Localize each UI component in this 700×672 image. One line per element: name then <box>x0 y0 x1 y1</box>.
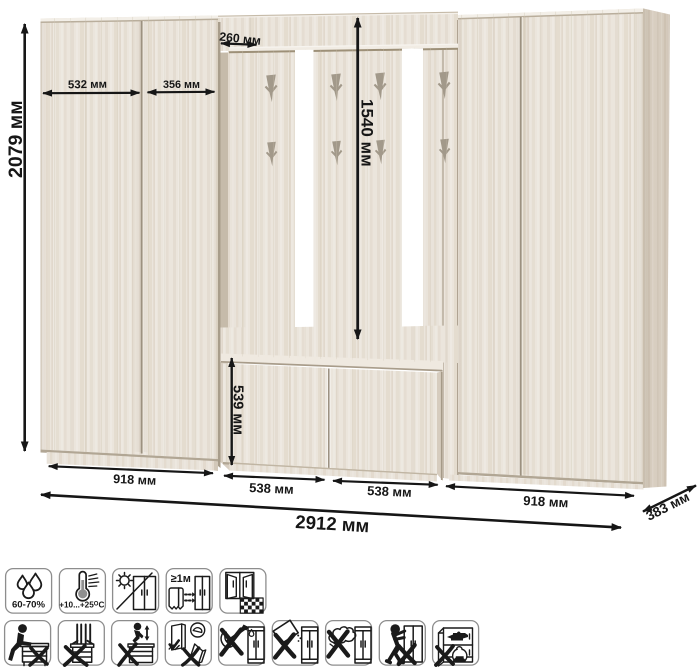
svg-text:538 мм: 538 мм <box>367 483 412 500</box>
svg-text:+10...+25ОС: +10...+25ОС <box>59 601 104 610</box>
svg-text:918 мм: 918 мм <box>523 493 569 510</box>
svg-text:1540 мм: 1540 мм <box>358 99 377 167</box>
svg-text:539 мм: 539 мм <box>230 385 246 435</box>
svg-text:2079 мм: 2079 мм <box>5 100 27 178</box>
svg-text:356 мм: 356 мм <box>163 79 200 91</box>
svg-text:60-70%: 60-70% <box>12 600 46 611</box>
svg-text:532 мм: 532 мм <box>68 79 107 92</box>
svg-text:538 мм: 538 мм <box>249 480 294 497</box>
svg-text:≥1м: ≥1м <box>171 573 191 585</box>
svg-text:2912 мм: 2912 мм <box>295 511 370 536</box>
svg-text:918 мм: 918 мм <box>113 472 157 488</box>
